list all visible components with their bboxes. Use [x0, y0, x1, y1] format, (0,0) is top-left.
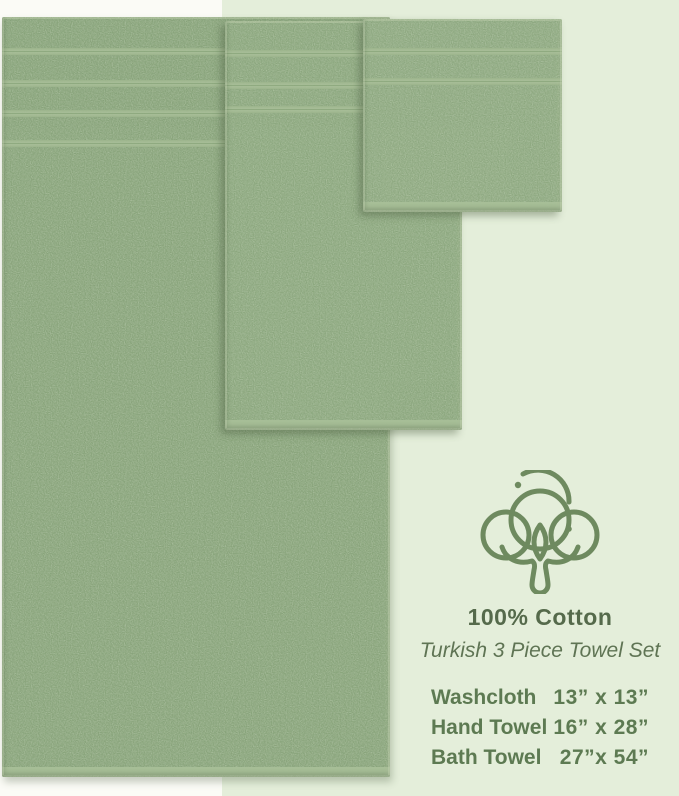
size-item-label: Washcloth [431, 683, 536, 713]
cotton-flower-icon [478, 470, 602, 594]
size-row-bath-towel: Bath Towel 27”x 54” [431, 743, 649, 773]
towel-border-stripe [363, 48, 562, 55]
towel-bottom-hem [225, 420, 462, 428]
size-row-washcloth: Washcloth 13” x 13” [431, 683, 649, 713]
towel-bottom-hem [2, 767, 390, 775]
size-table: Washcloth 13” x 13” Hand Towel 16” x 28”… [431, 683, 649, 773]
washcloth-towel [363, 19, 562, 212]
size-value: 27”x 54” [560, 743, 649, 773]
size-row-hand-towel: Hand Towel 16” x 28” [431, 713, 649, 743]
size-item-label: Hand Towel [431, 713, 547, 743]
cotton-icon-wrap [478, 470, 602, 594]
size-value: 16” x 28” [553, 713, 649, 743]
product-image: 100% Cotton Turkish 3 Piece Towel Set Wa… [0, 0, 679, 796]
product-info-panel: 100% Cotton Turkish 3 Piece Towel Set Wa… [400, 470, 679, 773]
subheadline-towel-set: Turkish 3 Piece Towel Set [400, 639, 679, 663]
towel-border-stripe [363, 78, 562, 85]
size-item-label: Bath Towel [431, 743, 541, 773]
headline-100-cotton: 100% Cotton [400, 604, 679, 631]
size-value: 13” x 13” [553, 683, 649, 713]
towel-bottom-hem [363, 202, 562, 210]
